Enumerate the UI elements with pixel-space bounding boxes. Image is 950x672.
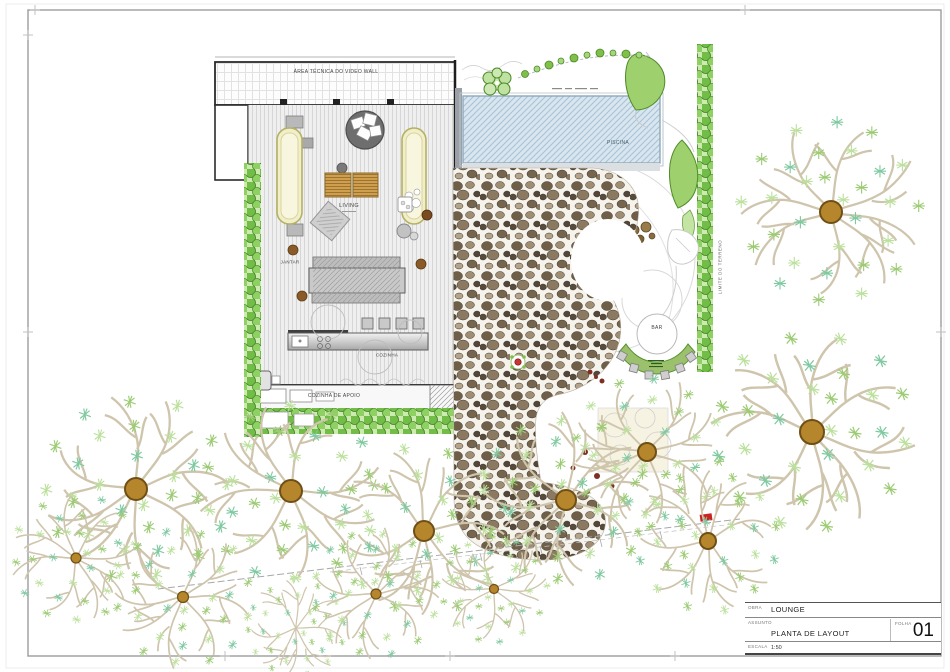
label-jantar: JANTAR xyxy=(281,260,300,265)
pool-note-micro-text xyxy=(552,88,598,89)
sheet-number-cell: FOLHA 01 xyxy=(890,619,937,642)
label-piscina: PISCINA xyxy=(607,140,629,146)
label-area-tecnica: ÁREA TÉCNICA DO VIDEO WALL xyxy=(294,69,379,75)
round-bush xyxy=(483,68,511,95)
sheet-label: FOLHA xyxy=(895,621,912,626)
plant-pot xyxy=(422,210,432,220)
lawn-notch xyxy=(571,219,645,301)
kitchen-counter xyxy=(288,333,428,350)
scale-value: 1:50 xyxy=(771,645,782,651)
flower-accent xyxy=(510,355,526,369)
title-block-subject-row: ASSUNTO PLANTA DE LAYOUT FOLHA 01 xyxy=(745,617,941,641)
subject-name: PLANTA DE LAYOUT xyxy=(771,629,850,638)
label-living: LIVING xyxy=(339,203,359,209)
subject-label: ASSUNTO xyxy=(748,620,772,625)
bar-table xyxy=(637,314,677,354)
label-cozinha: COZINHA xyxy=(376,353,398,358)
sheet-number: 01 xyxy=(913,620,934,642)
site-plan-drawing: .sprigs .c1{stroke:#9ccb74;} .sprigs .c2… xyxy=(0,0,950,672)
hedge-left xyxy=(244,163,261,437)
title-block-project-row: OBRA LOUNGE xyxy=(745,603,941,617)
title-block-scale-row: ESCALA 1:50 xyxy=(745,641,941,653)
floor-lamp xyxy=(397,224,411,238)
project-name: LOUNGE xyxy=(771,605,805,614)
pool xyxy=(463,96,660,163)
annex-room xyxy=(215,105,248,180)
label-limite-terreno: LIMITE DO TERRENO xyxy=(718,240,723,294)
label-living-subnote xyxy=(342,211,356,212)
wood-table-2 xyxy=(353,173,378,197)
label-bar: BAR xyxy=(651,325,662,331)
path-fork xyxy=(668,230,699,265)
hedge-right xyxy=(697,44,713,372)
drawing-sheet: .sprigs .c1{stroke:#9ccb74;} .sprigs .c2… xyxy=(0,0,950,672)
project-label: OBRA xyxy=(748,605,762,610)
label-cozinha-apoio: COZINHA DE APOIO xyxy=(308,393,360,399)
wood-table-1 xyxy=(325,173,351,197)
title-block: OBRA LOUNGE ASSUNTO PLANTA DE LAYOUT FOL… xyxy=(745,602,941,655)
scale-label: ESCALA xyxy=(748,644,768,649)
side-desk xyxy=(398,197,412,212)
